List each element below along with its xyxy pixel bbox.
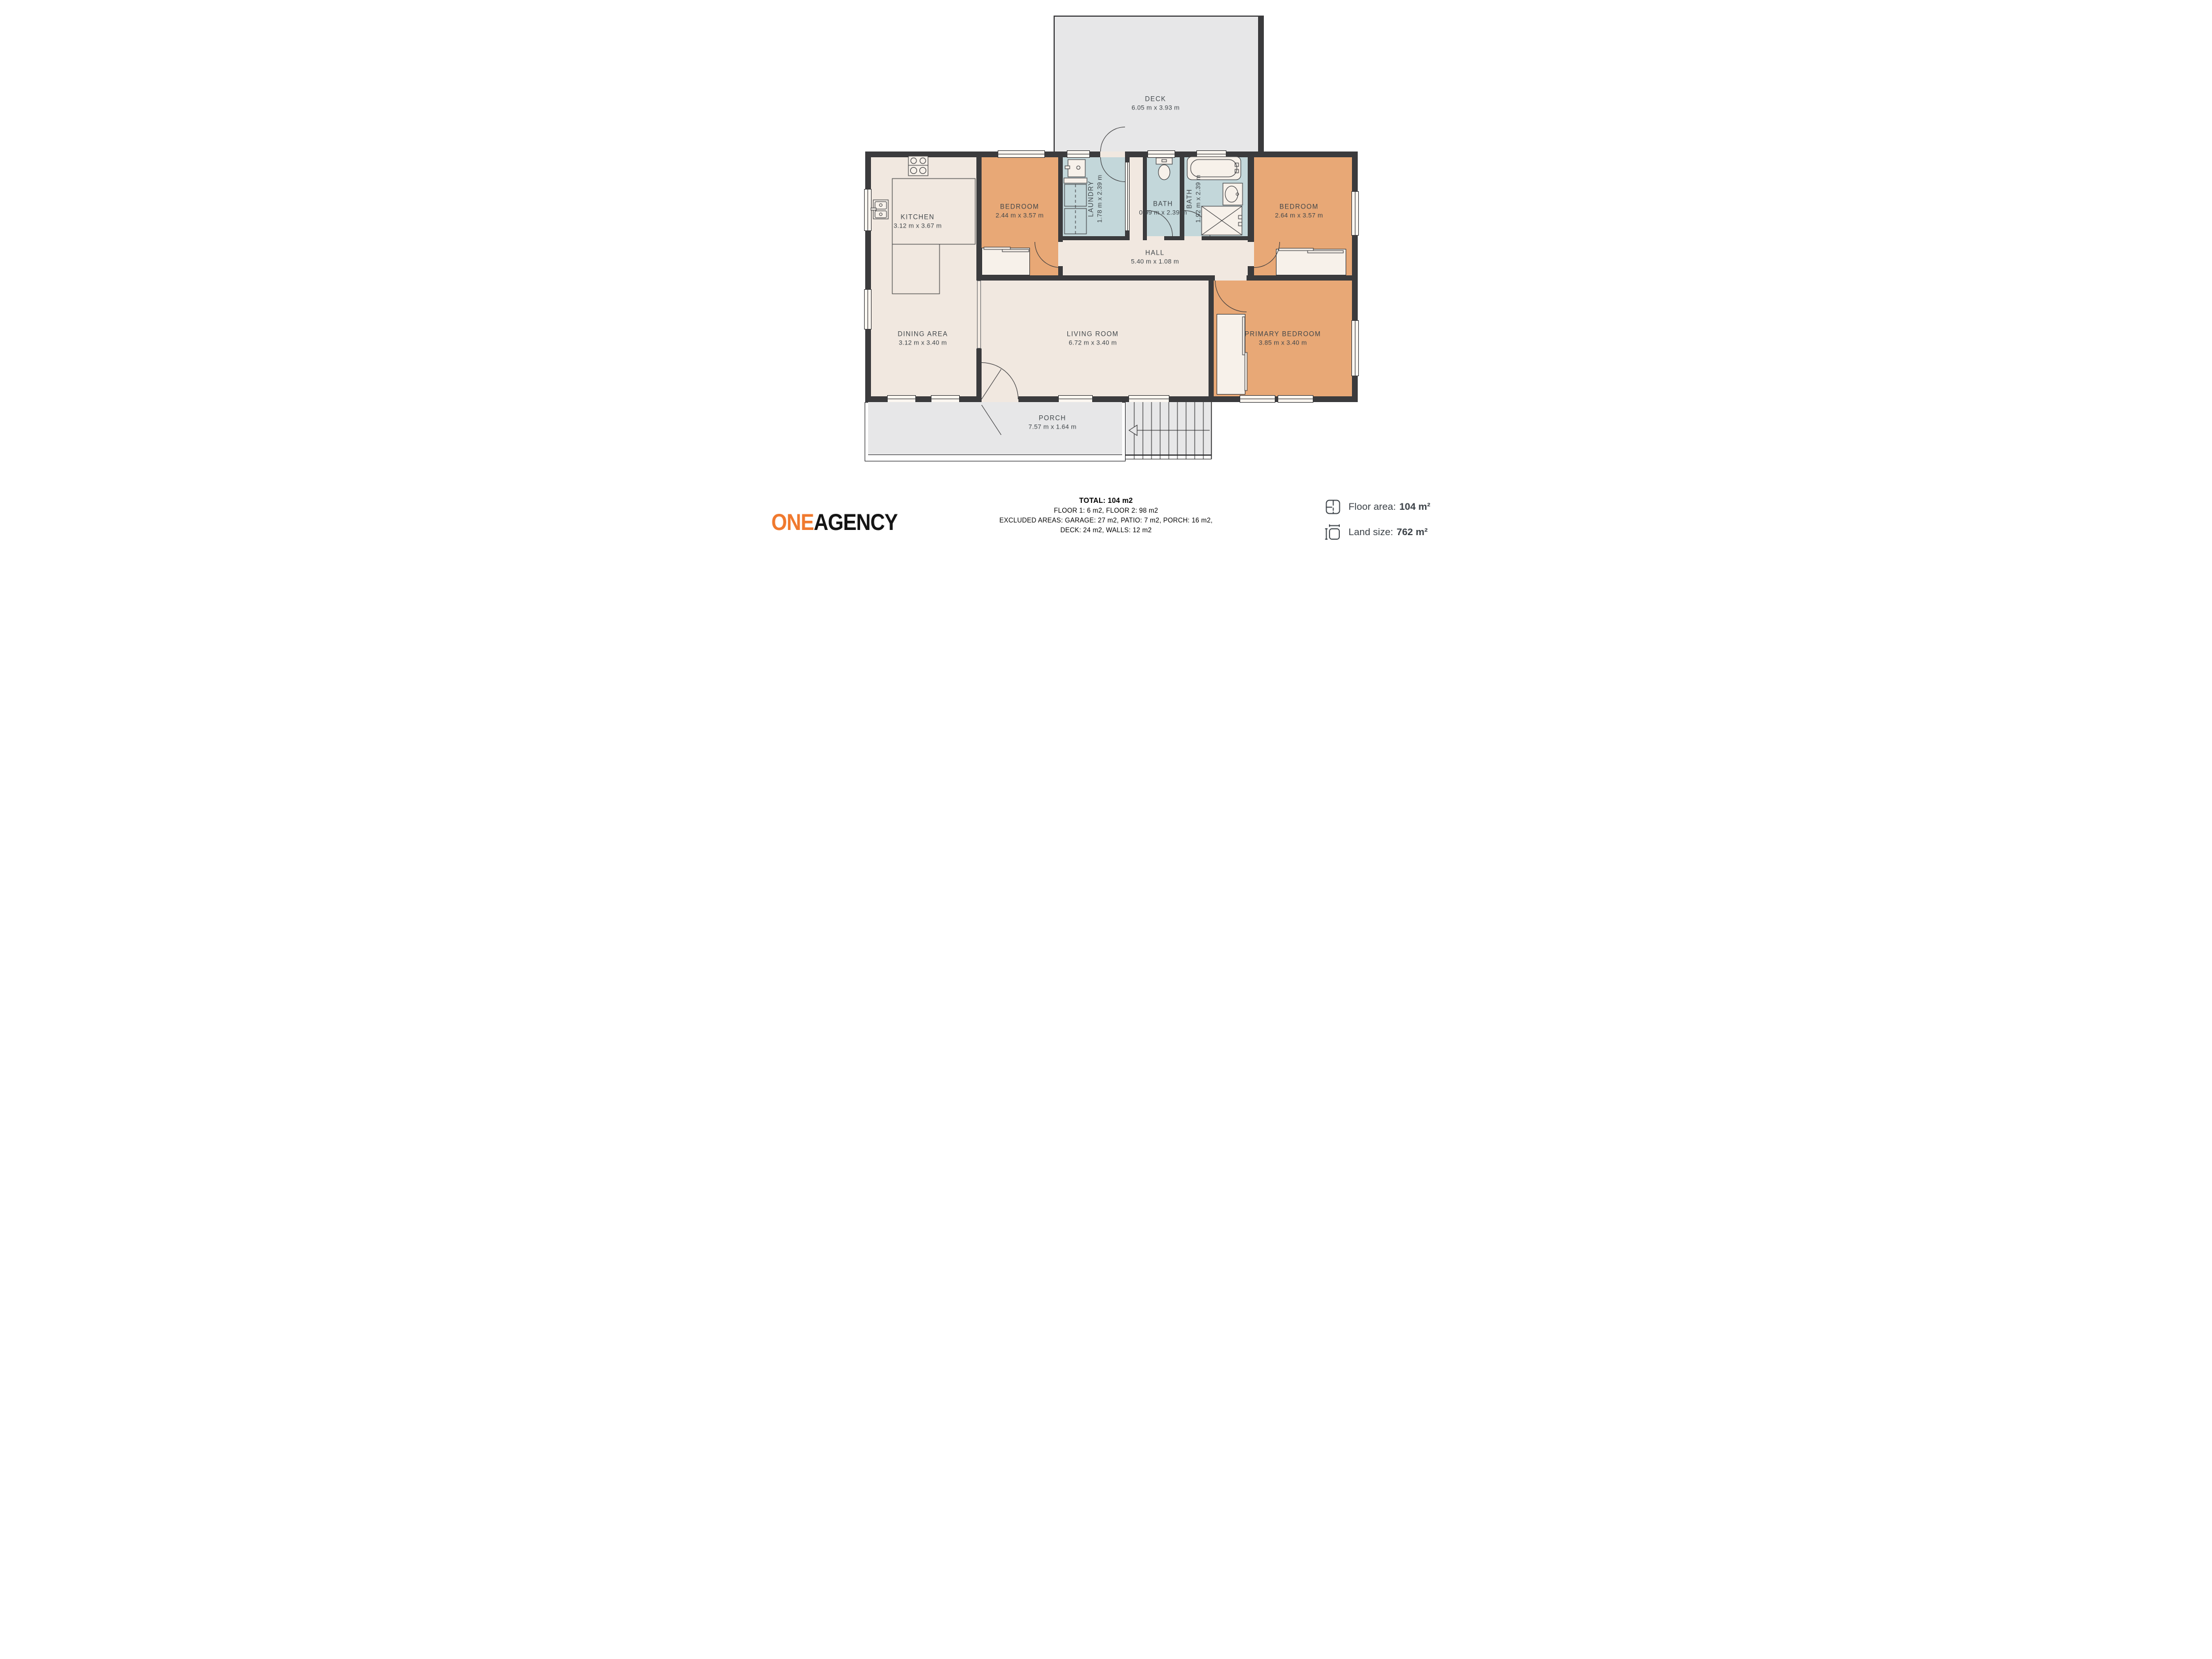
land-size-row: Land size:762 m² <box>1325 524 1427 540</box>
land-size-value: 762 m² <box>1397 527 1428 537</box>
wall-hall-bottom-2 <box>1247 275 1352 281</box>
window-bedroom-right <box>1351 191 1359 236</box>
hall-label: HALL 5.40 m x 1.08 m <box>1131 250 1179 266</box>
deck-dims: 6.05 m x 3.93 m <box>1131 105 1179 112</box>
floor-area-label: Floor area: <box>1349 501 1396 512</box>
hall-dims: 5.40 m x 1.08 m <box>1131 259 1179 266</box>
wall-hall-left-upper <box>1058 236 1063 242</box>
primary-bedroom-name: PRIMARY BEDROOM <box>1245 331 1321 338</box>
bath-small-name: BATH <box>1139 201 1187 208</box>
window-bath-small-top <box>1147 150 1175 158</box>
closet-bedroom-right <box>1276 249 1346 275</box>
floor-area-value: 104 m² <box>1399 501 1430 512</box>
dining-label: DINING AREA 3.12 m x 3.40 m <box>897 331 948 347</box>
bedroom-left-dims: 2.44 m x 3.57 m <box>995 213 1043 219</box>
stairs-area <box>1126 402 1211 455</box>
living-name: LIVING ROOM <box>1067 331 1119 338</box>
wall-hall-top-1 <box>1063 236 1130 240</box>
bedroom-right-label: BEDROOM 2.64 m x 3.57 m <box>1275 204 1323 219</box>
floorplan-page: DECK 6.05 m x 3.93 m KITCHEN 3.12 m x 3.… <box>737 0 1475 553</box>
logo-one-text: ONE <box>771 510 814 535</box>
laundry-name: LAUNDRY <box>1088 175 1095 222</box>
door-opening-deck <box>1100 151 1125 157</box>
primary-bedroom-label: PRIMARY BEDROOM 3.85 m x 3.40 m <box>1245 331 1321 347</box>
porch-label: PORCH 7.57 m x 1.64 m <box>1028 415 1076 431</box>
window-primary-bottom-2 <box>1278 395 1313 403</box>
bath-small-dims: 0.99 m x 2.39 m <box>1139 210 1187 217</box>
wall-dining-living <box>976 349 982 396</box>
porch-dims: 7.57 m x 1.64 m <box>1028 424 1076 431</box>
deck-area <box>1054 16 1258 151</box>
bedroom-right-name: BEDROOM <box>1275 204 1323 211</box>
hall-name: HALL <box>1131 250 1179 257</box>
kitchen-name: KITCHEN <box>893 214 941 221</box>
bedroom-right-dims: 2.64 m x 3.57 m <box>1275 213 1323 219</box>
land-size-label: Land size: <box>1349 527 1393 537</box>
wall-hall-top-2 <box>1143 236 1147 240</box>
logo-agency-text: AGENCY <box>814 510 897 535</box>
window-bedroom-left-top <box>998 150 1045 158</box>
wall-bath-bedroom <box>1248 157 1254 236</box>
land-size-text: Land size:762 m² <box>1349 527 1427 538</box>
bath-main-name: BATH <box>1187 175 1194 222</box>
wall-hall-top-3 <box>1164 236 1184 240</box>
kitchen-dims: 3.12 m x 3.67 m <box>893 223 941 230</box>
wall-living-primary <box>1209 281 1214 396</box>
deck-name: DECK <box>1131 96 1179 103</box>
wall-kitchen-bedroom <box>976 157 982 281</box>
window-laundry-top <box>1067 150 1090 158</box>
window-kitchen-left <box>864 189 872 231</box>
laundry-dims: 1.78 m x 2.39 m <box>1097 175 1104 222</box>
wall-hall-right-upper <box>1248 236 1254 242</box>
pocket-door-laundry <box>1125 162 1130 231</box>
wall-bedroom-laundry <box>1058 157 1063 236</box>
window-bath-main-top <box>1196 150 1226 158</box>
bedroom-left-name: BEDROOM <box>995 204 1043 211</box>
bath-main-label: BATH 1.92 m x 2.39 m <box>1187 175 1202 222</box>
door-opening-primary <box>1215 275 1247 281</box>
deck-label: DECK 6.05 m x 3.93 m <box>1131 96 1179 112</box>
opening-dining-living <box>977 281 981 349</box>
land-size-icon <box>1325 524 1341 540</box>
laundry-label: LAUNDRY 1.78 m x 2.39 m <box>1088 175 1104 222</box>
wall-corridor-bath <box>1143 157 1147 236</box>
bath-main-dims: 1.92 m x 2.39 m <box>1195 175 1202 222</box>
window-dining-left <box>864 289 872 329</box>
wall-bath-bath <box>1180 157 1184 236</box>
deck-right-wall <box>1258 16 1264 151</box>
porch-name: PORCH <box>1028 415 1076 422</box>
floor-area-icon <box>1325 499 1341 515</box>
living-dims: 6.72 m x 3.40 m <box>1067 340 1119 347</box>
wall-hall-top-4 <box>1202 236 1248 240</box>
living-label: LIVING ROOM 6.72 m x 3.40 m <box>1067 331 1119 347</box>
floor-area-row: Floor area:104 m² <box>1325 499 1430 515</box>
bath-small-label: BATH 0.99 m x 2.39 m <box>1139 201 1187 217</box>
floor-area-text: Floor area:104 m² <box>1349 501 1430 513</box>
dining-name: DINING AREA <box>897 331 948 338</box>
porch-area <box>868 402 1122 455</box>
primary-bedroom-dims: 3.85 m x 3.40 m <box>1245 340 1321 347</box>
kitchen-label: KITCHEN 3.12 m x 3.67 m <box>893 214 941 230</box>
dining-dims: 3.12 m x 3.40 m <box>897 340 948 347</box>
window-primary-bottom-1 <box>1240 395 1275 403</box>
closet-bedroom-left <box>982 248 1030 275</box>
bedroom-left-label: BEDROOM 2.44 m x 3.57 m <box>995 204 1043 219</box>
agency-logo: ONEAGENCY <box>771 510 897 536</box>
closet-primary-bedroom <box>1217 314 1245 395</box>
window-primary-right <box>1351 320 1359 376</box>
wall-hall-bottom-1 <box>976 275 1215 281</box>
